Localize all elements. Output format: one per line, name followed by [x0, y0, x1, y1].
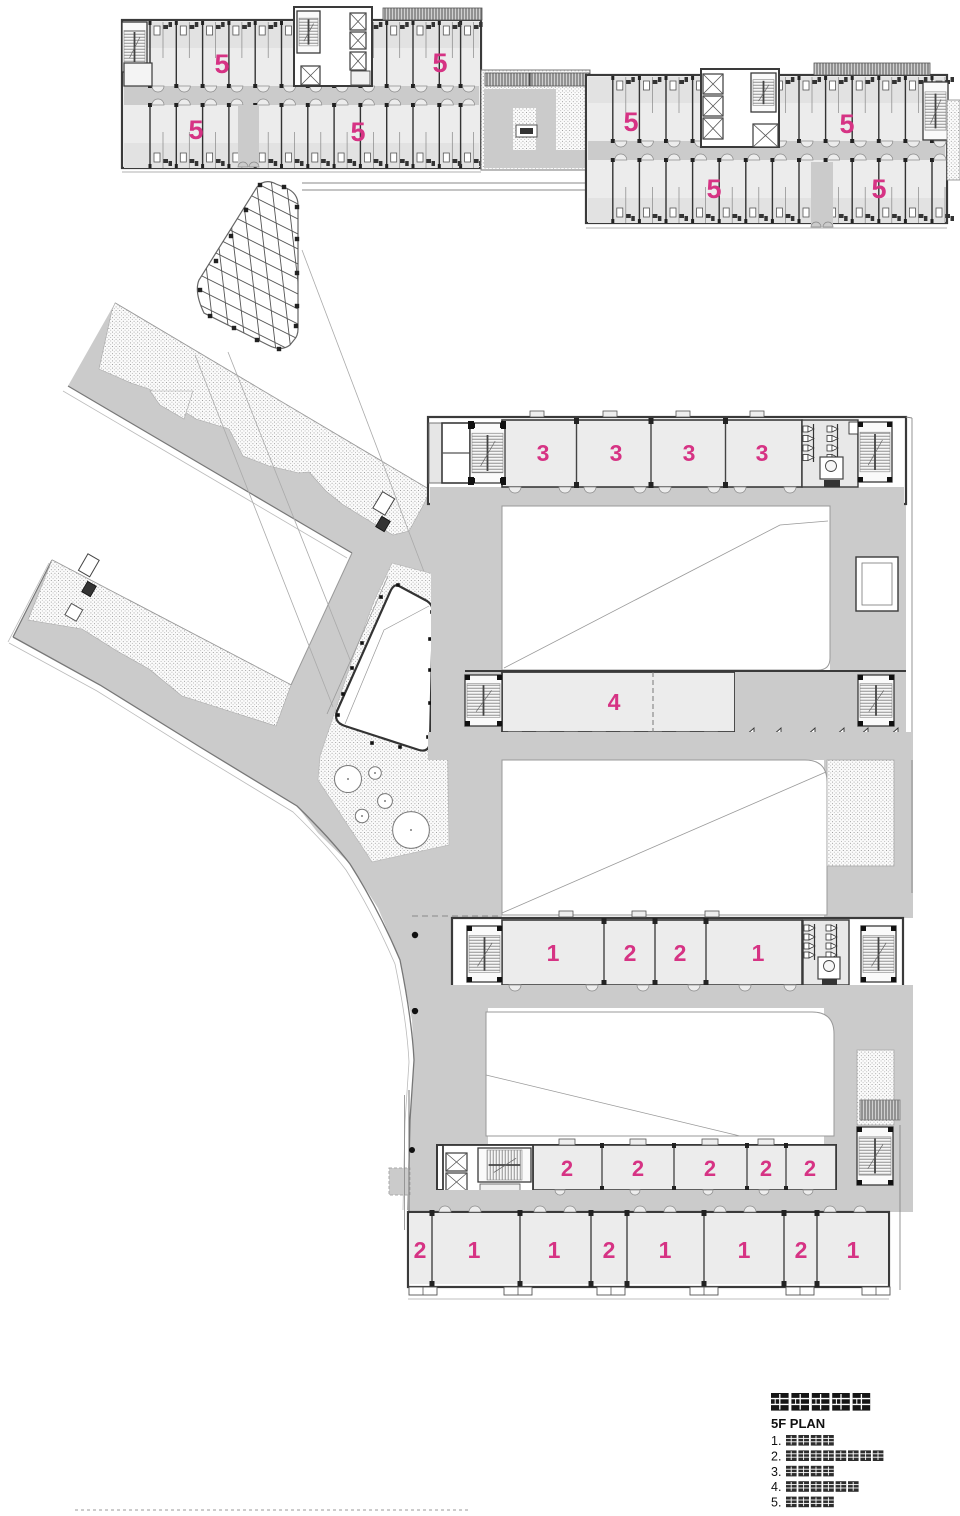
svg-text:1: 1 — [548, 1237, 561, 1263]
svg-text:2: 2 — [795, 1237, 808, 1263]
svg-text:3: 3 — [610, 440, 623, 466]
svg-text:5.: 5. — [771, 1496, 781, 1510]
svg-text:4.: 4. — [771, 1480, 781, 1494]
svg-text:3: 3 — [683, 440, 696, 466]
svg-text:2: 2 — [603, 1237, 616, 1263]
svg-text:2: 2 — [804, 1156, 816, 1181]
svg-text:5: 5 — [839, 109, 854, 139]
svg-text:1: 1 — [468, 1237, 481, 1263]
svg-text:2: 2 — [704, 1156, 716, 1181]
svg-text:5: 5 — [188, 115, 203, 145]
svg-text:2: 2 — [760, 1156, 772, 1181]
svg-text:1: 1 — [752, 940, 765, 966]
svg-text:2: 2 — [414, 1237, 427, 1263]
svg-text:5: 5 — [623, 107, 638, 137]
svg-text:3: 3 — [537, 440, 550, 466]
svg-text:1: 1 — [659, 1237, 672, 1263]
svg-text:3: 3 — [756, 440, 769, 466]
svg-text:5: 5 — [350, 117, 365, 147]
svg-text:1: 1 — [547, 940, 560, 966]
svg-text:2.: 2. — [771, 1449, 781, 1463]
svg-text:1: 1 — [738, 1237, 751, 1263]
svg-text:5: 5 — [706, 174, 721, 204]
svg-text:2: 2 — [674, 940, 687, 966]
svg-text:2: 2 — [632, 1156, 644, 1181]
svg-text:4: 4 — [608, 689, 621, 715]
svg-text:2: 2 — [561, 1156, 573, 1181]
svg-text:5F PLAN: 5F PLAN — [771, 1416, 825, 1431]
svg-text:5: 5 — [214, 49, 229, 79]
svg-text:5: 5 — [432, 48, 447, 78]
svg-text:1.: 1. — [771, 1434, 781, 1448]
svg-text:2: 2 — [624, 940, 637, 966]
svg-text:3.: 3. — [771, 1465, 781, 1479]
svg-text:5: 5 — [871, 174, 886, 204]
svg-text:1: 1 — [847, 1237, 860, 1263]
